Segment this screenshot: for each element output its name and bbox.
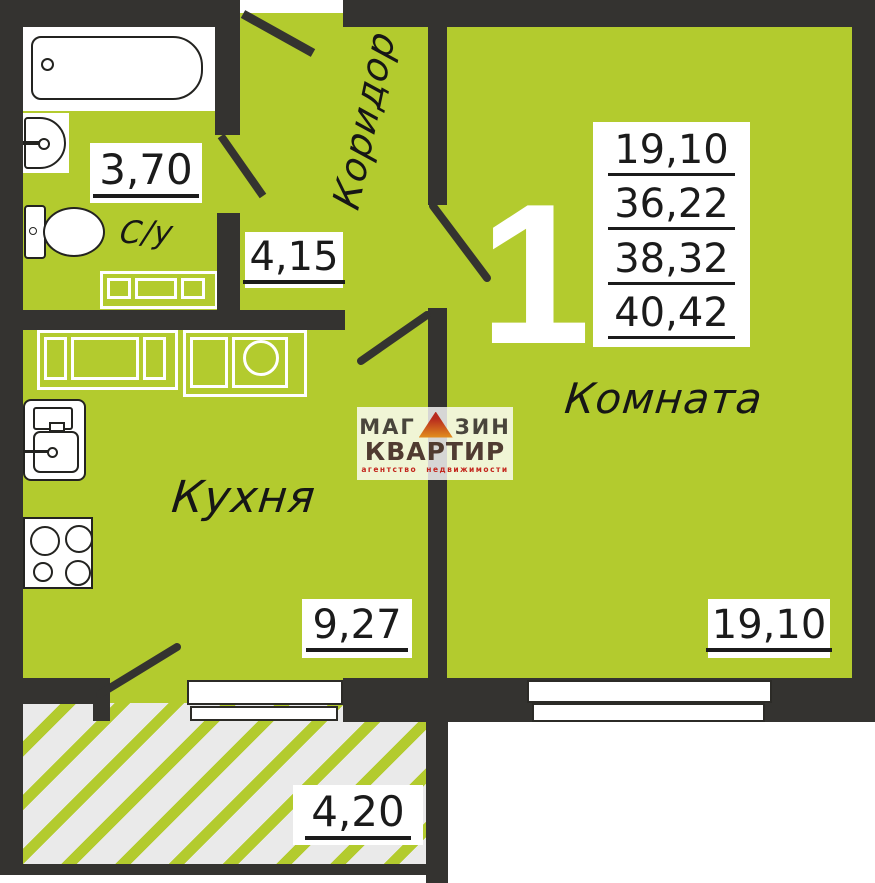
room-area-value: 19,10 <box>706 605 833 652</box>
apartment-type-number: 1 <box>475 203 595 347</box>
kitchen-area-value: 9,27 <box>306 605 407 652</box>
bathroom-area-label: 3,70 <box>90 143 202 203</box>
triangle-icon <box>419 412 453 438</box>
entrance-door-swing <box>243 14 313 53</box>
label-bathroom: С/у <box>117 215 175 251</box>
hall-area-value: 4,15 <box>243 237 344 284</box>
summary-room-area: 19,10 <box>608 130 735 176</box>
bathroom-door-swing <box>221 136 263 196</box>
hall-area-label: 4,15 <box>245 232 343 288</box>
balcony-door-swing <box>100 647 177 694</box>
balcony-area-label: 4,20 <box>293 785 423 845</box>
logo-word1-right: ЗИН <box>455 417 511 438</box>
label-kitchen: Кухня <box>169 472 318 523</box>
summary-apartment-area: 38,32 <box>608 239 735 285</box>
label-room: Комната <box>562 374 765 423</box>
floor-plan: 3,70 4,15 9,27 19,10 4,20 19,10 36,22 38… <box>0 0 875 883</box>
logo-word1: МАГ ЗИН <box>359 412 511 438</box>
kitchen-door-swing <box>361 315 427 361</box>
bathroom-area-value: 3,70 <box>93 149 199 198</box>
kitchen-area-label: 9,27 <box>302 599 412 658</box>
balcony-area-value: 4,20 <box>305 791 411 840</box>
logo-tagline: агентство недвижимости <box>361 465 508 476</box>
logo-word2: КВАРТИР <box>365 438 505 466</box>
agency-logo: МАГ ЗИН КВАРТИР агентство недвижимости <box>357 407 513 480</box>
summary-total-area: 40,42 <box>608 293 735 339</box>
summary-living-area: 36,22 <box>608 184 735 230</box>
logo-word1-left: МАГ <box>359 417 416 438</box>
area-summary-box: 19,10 36,22 38,32 40,42 <box>593 122 750 347</box>
room-area-label: 19,10 <box>708 599 830 658</box>
